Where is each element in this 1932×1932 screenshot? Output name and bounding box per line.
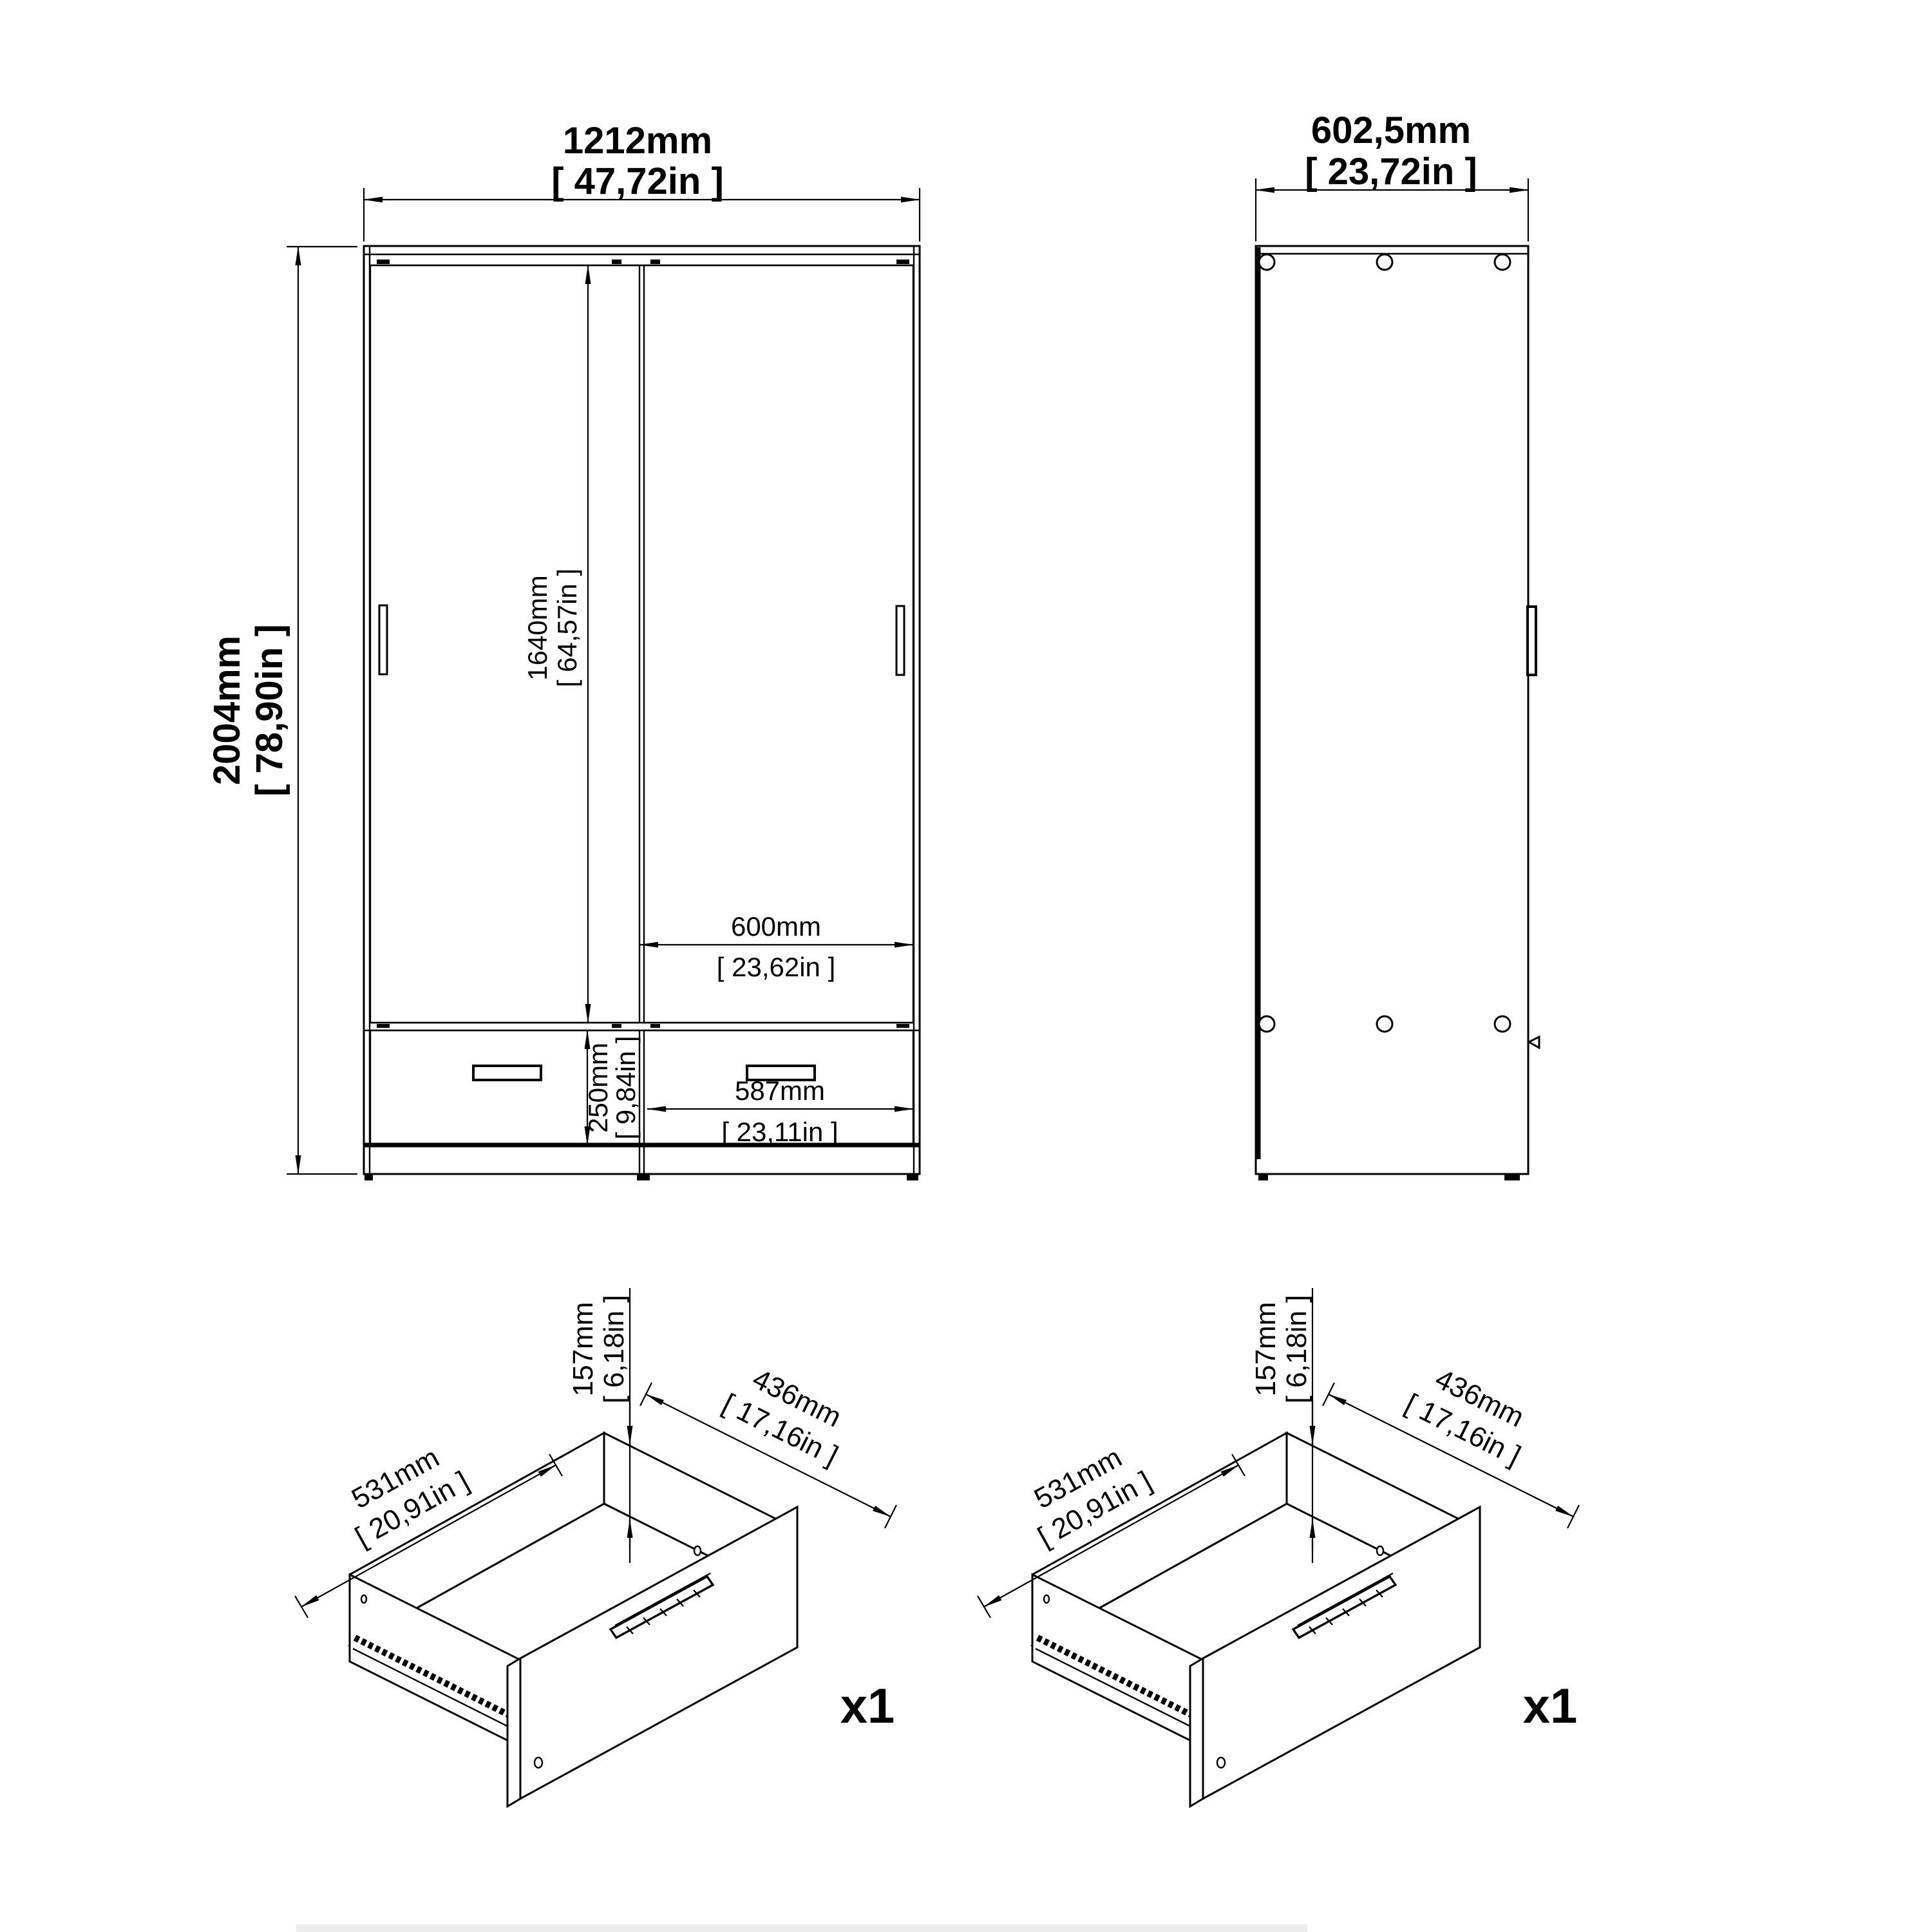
wardrobe-front-outline bbox=[364, 246, 920, 1174]
drawer-height-mm: 157mm bbox=[1250, 1302, 1282, 1397]
cropped-fine-print-strip bbox=[296, 1924, 1307, 1932]
technical-drawing-page: 1212mm [ 47,72in ] 2004mm [ 78,90in ] 16… bbox=[0, 0, 1932, 1932]
drawer-width-label-mm: 587mm bbox=[735, 1075, 825, 1106]
cam-hole bbox=[1495, 1016, 1510, 1032]
side-door-handle-profile bbox=[1528, 607, 1536, 675]
screw-hole bbox=[1044, 1595, 1049, 1603]
depth-label-in: [ 23,72in ] bbox=[1305, 151, 1477, 193]
foot bbox=[637, 1174, 650, 1180]
drawer-front-edge bbox=[507, 1658, 520, 1806]
drawer-height-label-mm: 250mm bbox=[583, 1043, 613, 1133]
door-height-label-in: [ 64,57in ] bbox=[552, 569, 582, 687]
cam-hole bbox=[1259, 1016, 1274, 1032]
screw-hole bbox=[361, 1595, 366, 1603]
dim-total-height: 2004mm [ 78,90in ] bbox=[206, 247, 357, 1174]
total-height-label-mm: 2004mm bbox=[206, 636, 248, 785]
track-stop bbox=[377, 1024, 390, 1028]
cam-hole bbox=[1377, 1016, 1392, 1032]
screw-hole bbox=[1217, 1757, 1225, 1768]
drawer-height-in: [ 6,18in ] bbox=[1281, 1295, 1312, 1404]
drawer-height-in: [ 6,18in ] bbox=[598, 1295, 630, 1404]
door-width-label-mm: 600mm bbox=[731, 911, 821, 942]
foot bbox=[1504, 1174, 1520, 1180]
left-door-handle bbox=[379, 605, 387, 674]
drawer-height-mm: 157mm bbox=[567, 1302, 599, 1397]
total-height-label-in: [ 78,90in ] bbox=[249, 624, 290, 797]
depth-label-mm: 602,5mm bbox=[1311, 109, 1471, 151]
track-stop bbox=[896, 260, 909, 264]
drawer-detail-right: 157mm [ 6,18in ] 531mm [ 20,91in ] 436mm… bbox=[978, 1288, 1579, 1806]
front-view: 1212mm [ 47,72in ] 2004mm [ 78,90in ] 16… bbox=[206, 120, 920, 1180]
drawer-quantity: x1 bbox=[840, 1679, 895, 1734]
foot bbox=[907, 1174, 918, 1180]
foot bbox=[1258, 1174, 1268, 1180]
track-stop bbox=[896, 1024, 909, 1028]
wardrobe-dimension-diagram: 1212mm [ 47,72in ] 2004mm [ 78,90in ] 16… bbox=[0, 0, 1932, 1932]
drawer-width-label-in: [ 23,11in ] bbox=[721, 1117, 838, 1147]
door-height-label-mm: 1640mm bbox=[522, 575, 553, 680]
track-stop bbox=[650, 1024, 660, 1028]
door-width-label-in: [ 23,62in ] bbox=[717, 952, 835, 982]
track-stop bbox=[377, 260, 390, 264]
cam-hole bbox=[1495, 254, 1510, 270]
track-stop bbox=[612, 260, 621, 264]
cam-hole bbox=[1259, 254, 1274, 270]
side-view: 602,5mm [ 23,72in ] bbox=[1256, 109, 1539, 1180]
drawer-detail-left: 157mm [ 6,18in ] 531mm [ 20,91in ] 436mm… bbox=[295, 1288, 896, 1806]
screw-hole bbox=[1377, 1546, 1383, 1555]
wall-fixing-bracket bbox=[1529, 1037, 1539, 1048]
drawer-quantity: x1 bbox=[1523, 1679, 1578, 1734]
cam-hole bbox=[1377, 254, 1392, 270]
right-door-handle bbox=[896, 606, 904, 675]
screw-hole bbox=[694, 1546, 701, 1555]
dim-drawer-height: 250mm [ 9,84in ] bbox=[583, 1030, 641, 1145]
track-stop bbox=[650, 260, 660, 264]
track-stop bbox=[612, 1024, 621, 1028]
foot bbox=[365, 1174, 373, 1180]
screw-hole bbox=[535, 1757, 542, 1768]
drawer-height-label-in: [ 9,84in ] bbox=[611, 1036, 641, 1139]
total-width-label-in: [ 47,72in ] bbox=[551, 160, 724, 202]
total-width-label-mm: 1212mm bbox=[563, 120, 712, 162]
left-drawer-handle bbox=[473, 1066, 541, 1080]
wardrobe-side-outline bbox=[1256, 246, 1528, 1174]
dim-total-width: 1212mm [ 47,72in ] bbox=[364, 120, 920, 241]
dim-depth: 602,5mm [ 23,72in ] bbox=[1256, 109, 1528, 241]
drawer-front-edge bbox=[1190, 1658, 1203, 1806]
